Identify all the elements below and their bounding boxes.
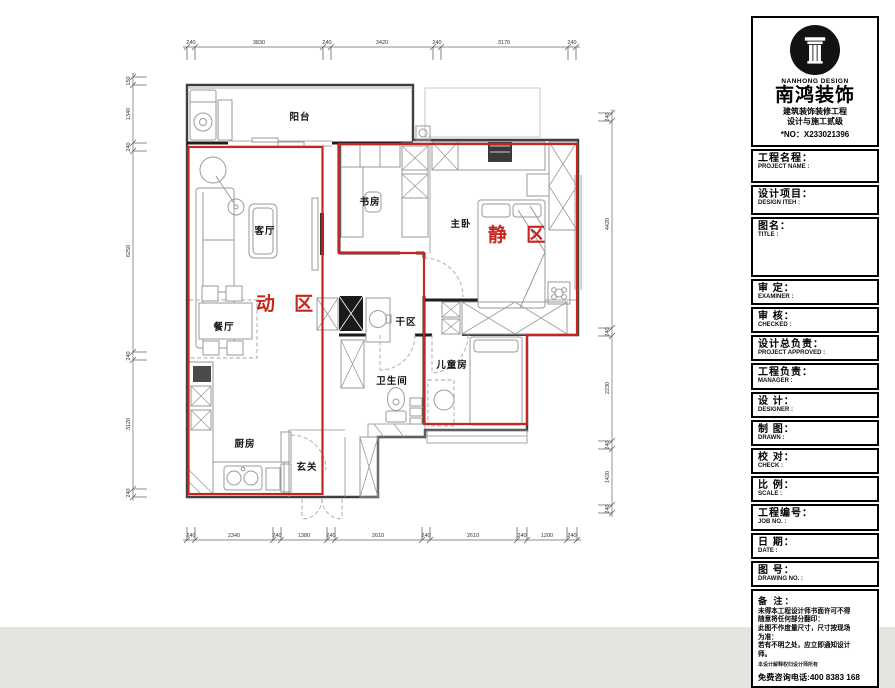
svg-text:240: 240 — [126, 488, 132, 497]
label-dining: 餐厅 — [212, 321, 234, 333]
label-zone-dong: 动 区 — [256, 293, 320, 315]
svg-text:1340: 1340 — [126, 108, 132, 120]
field-title: 图名： TITLE : — [751, 217, 879, 277]
svg-text:240: 240 — [322, 40, 331, 46]
dim-left: 150 1340 240 6250 240 3120 240 — [126, 73, 147, 501]
svg-text:240: 240 — [605, 504, 611, 513]
field-date: 日 期： DATE : — [751, 533, 879, 559]
label-dry-area: 干区 — [395, 317, 416, 328]
svg-text:3170: 3170 — [498, 40, 510, 46]
label-bathroom: 卫生间 — [376, 375, 408, 387]
svg-text:240: 240 — [517, 533, 526, 539]
svg-text:240: 240 — [605, 327, 611, 336]
dim-right: 240 4420 240 2230 240 1420 240 — [598, 109, 615, 517]
svg-text:2230: 2230 — [605, 382, 611, 394]
svg-text:240: 240 — [567, 40, 576, 46]
svg-text:3120: 3120 — [126, 418, 132, 430]
field-checked: 审 核： CHECKED : — [751, 307, 879, 333]
svg-text:4420: 4420 — [605, 218, 611, 230]
company-logo — [790, 25, 840, 75]
svg-text:240: 240 — [326, 533, 335, 539]
field-check: 校 对： CHECK : — [751, 448, 879, 474]
field-design-item: 设计项目： DESIGN ITEH : — [751, 185, 879, 215]
field-examiner: 审 定： EXAMINER : — [751, 279, 879, 305]
field-drawing-no: 图 号： DRAWING NO. : — [751, 561, 879, 587]
svg-text:240: 240 — [421, 533, 430, 539]
brand-license: *NO：X233021396 — [755, 129, 875, 140]
label-kitchen: 厨房 — [234, 438, 255, 450]
label-balcony: 阳台 — [289, 111, 310, 123]
svg-text:2610: 2610 — [467, 533, 479, 539]
entry-hall — [281, 432, 342, 519]
label-entry: 玄关 — [296, 461, 317, 473]
svg-text:240: 240 — [432, 40, 441, 46]
field-manager: 工程负责： MANAGER : — [751, 363, 879, 389]
label-master: 主卧 — [450, 218, 471, 230]
svg-text:2610: 2610 — [372, 533, 384, 539]
svg-text:1380: 1380 — [298, 533, 310, 539]
svg-text:6250: 6250 — [126, 245, 132, 257]
svg-text:240: 240 — [605, 440, 611, 449]
floor-plan: 240 3830 240 3420 240 3170 240 150 1340 … — [0, 0, 745, 600]
svg-text:2340: 2340 — [228, 533, 240, 539]
svg-text:240: 240 — [126, 351, 132, 360]
svg-text:1200: 1200 — [541, 533, 553, 539]
dim-top: 240 3830 240 3420 240 3170 240 — [183, 40, 580, 60]
field-project-approved: 设计总负责： PROJECT APPROVED : — [751, 335, 879, 361]
field-drawn: 制 图： DRAWN : — [751, 420, 879, 446]
field-project-name: 工程名程： PROJECT NAME : — [751, 149, 879, 183]
notes-fine-print: 本设计解释权归设计师所有 — [758, 661, 872, 668]
svg-text:150: 150 — [126, 76, 132, 85]
notes-block: 备 注： 未得本工程设计师书面许可不得 随意将任何部分翻印： 此图不作度量尺寸，… — [751, 589, 879, 688]
svg-text:240: 240 — [186, 533, 195, 539]
title-block: NANHONG DESIGN 南鸿装饰 建筑装饰装修工程 设计与施工贰级 *NO… — [751, 16, 879, 609]
label-study: 书房 — [359, 196, 380, 208]
brand-cert-1: 建筑装饰装修工程 — [755, 107, 875, 117]
svg-text:240: 240 — [567, 533, 576, 539]
svg-text:240: 240 — [186, 40, 195, 46]
label-kids: 儿童房 — [435, 359, 468, 371]
field-job-no: 工程编号： JOB NO. : — [751, 504, 879, 530]
label-zone-jing: 静 区 — [488, 223, 552, 246]
hotline-number: 免费咨询电话:400 8383 168 — [758, 668, 872, 683]
brand-name-en: NANHONG DESIGN — [755, 78, 875, 85]
dim-bottom: 240 2340 240 1380 240 2610 240 2610 240 … — [183, 527, 581, 543]
field-scale: 比 例： SCALE : — [751, 476, 879, 502]
svg-text:3420: 3420 — [376, 40, 388, 46]
field-designer: 设 计： DESIGNER : — [751, 392, 879, 418]
svg-text:240: 240 — [126, 142, 132, 151]
drawing-sheet: 240 3830 240 3420 240 3170 240 150 1340 … — [0, 0, 895, 627]
svg-text:3830: 3830 — [253, 40, 265, 46]
svg-text:240: 240 — [605, 112, 611, 121]
label-living: 客厅 — [253, 225, 275, 237]
column-logo-icon — [798, 33, 832, 67]
brand-name-zh: 南鸿装饰 — [755, 85, 875, 107]
svg-text:240: 240 — [272, 533, 281, 539]
brand-cert-2: 设计与施工贰级 — [755, 117, 875, 127]
kitchen — [189, 362, 284, 494]
svg-text:1420: 1420 — [605, 471, 611, 483]
notes-title: 备 注： — [758, 594, 872, 607]
company-header: NANHONG DESIGN 南鸿装饰 建筑装饰装修工程 设计与施工贰级 *NO… — [751, 16, 879, 147]
study — [341, 143, 428, 237]
